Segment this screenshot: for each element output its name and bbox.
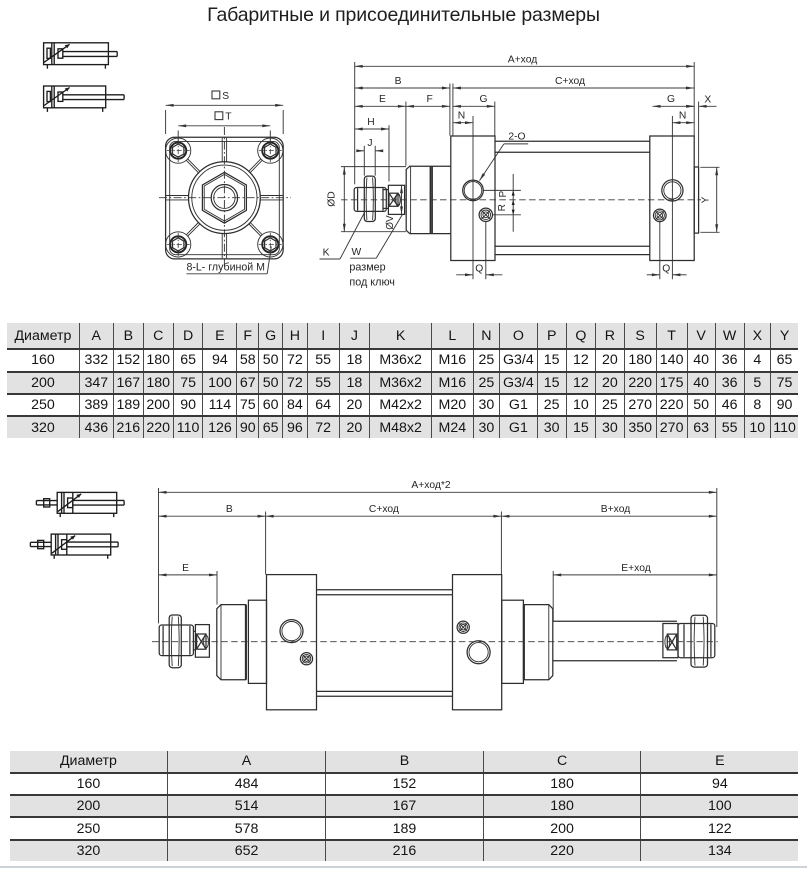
svg-text:N: N [458, 110, 465, 121]
svg-text:E+ход: E+ход [621, 563, 650, 574]
svg-text:X: X [704, 95, 711, 106]
svg-text:E: E [182, 563, 189, 574]
svg-text:N: N [679, 110, 686, 121]
svg-text:B: B [226, 504, 233, 515]
svg-text:G: G [479, 94, 487, 105]
svg-text:A+ход*2: A+ход*2 [411, 480, 450, 491]
svg-text:B+ход: B+ход [601, 504, 630, 515]
svg-text:8-L- глубиной M: 8-L- глубиной M [187, 262, 265, 274]
svg-text:G: G [667, 94, 675, 105]
svg-text:K: K [323, 247, 330, 258]
svg-text:H: H [367, 117, 374, 128]
svg-text:C+ход: C+ход [555, 76, 585, 87]
svg-text:C+ход: C+ход [369, 504, 399, 515]
svg-text:размер: размер [349, 261, 385, 273]
svg-text:P: P [498, 191, 509, 198]
svg-text:R: R [497, 204, 508, 211]
svg-text:Q: Q [662, 264, 670, 275]
svg-text:T: T [225, 112, 232, 123]
svg-text:ØD: ØD [327, 191, 338, 206]
svg-text:F: F [427, 94, 433, 105]
svg-text:J: J [367, 138, 372, 149]
svg-text:S: S [222, 91, 229, 102]
svg-text:E: E [379, 94, 386, 105]
svg-text:A+ход: A+ход [508, 54, 537, 65]
svg-text:2-O: 2-O [508, 131, 525, 142]
svg-text:Q: Q [475, 264, 483, 275]
svg-text:под ключ: под ключ [349, 276, 395, 288]
svg-text:B: B [395, 76, 402, 87]
svg-text:Y: Y [700, 196, 711, 203]
svg-text:W: W [352, 247, 362, 258]
